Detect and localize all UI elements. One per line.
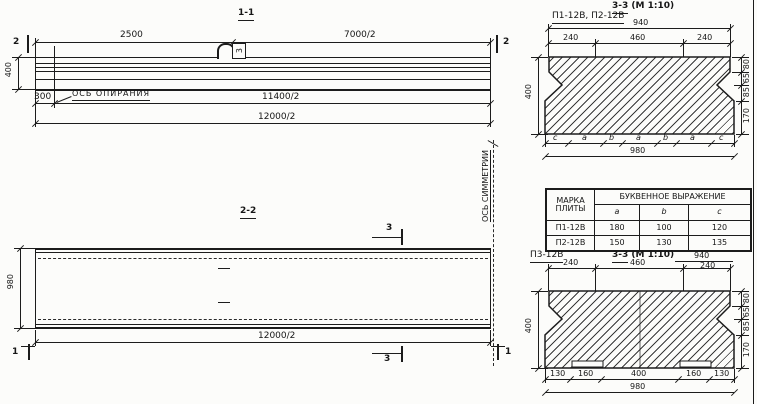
dim-extension — [35, 330, 36, 346]
dim-extension — [683, 39, 684, 57]
beam-line — [35, 79, 490, 80]
dim-label-400: 400 — [631, 370, 646, 378]
dim-line — [548, 28, 730, 29]
bottom-recess — [572, 361, 603, 367]
slab-line — [35, 324, 491, 325]
letter-dim-c: c — [719, 134, 723, 142]
slab-bottom-edge — [35, 327, 491, 329]
table-row: П2-12В 150 130 135 — [546, 236, 751, 252]
slab-right-edge — [490, 248, 491, 329]
dim-tick — [731, 153, 738, 160]
cell-a: 150 — [595, 236, 640, 252]
cut-mark-label: 1 — [12, 348, 18, 357]
dim-label-7000-2: 7000/2 — [344, 31, 376, 40]
cut-mark-label: 2 — [503, 38, 509, 47]
cut-mark-tick — [27, 35, 29, 53]
cut-mark-tick — [401, 346, 403, 362]
letter-dim-c: c — [553, 134, 557, 142]
plate-mark-label: П3-12В — [530, 251, 563, 263]
dim-line — [545, 143, 734, 144]
dim-label-130: 130 — [714, 370, 729, 378]
slab-top-edge — [35, 248, 491, 250]
dim-extension — [730, 264, 731, 291]
dim-label-65: 65 — [743, 73, 751, 83]
section-title: 3-3 (М 1:10) — [612, 2, 674, 11]
dim-extension — [14, 248, 36, 249]
dim-label-980: 980 — [630, 147, 645, 155]
dim-label-400: 400 — [5, 62, 13, 77]
dim-extension — [730, 24, 731, 57]
dim-line-vertical — [20, 248, 21, 329]
slab-left-edge — [35, 248, 36, 329]
dim-label-65: 65 — [743, 307, 751, 317]
dim-label-80: 80 — [743, 59, 751, 69]
table-col-b: b — [640, 205, 689, 221]
cut-mark-label: 3 — [386, 224, 392, 233]
dim-extension — [490, 330, 491, 346]
dim-label-12000-2: 12000/2 — [258, 332, 295, 341]
section-title: 1-1 — [238, 9, 254, 21]
slab-hidden-line — [38, 258, 488, 259]
table-header-mark: МАРКА ПЛИТЫ — [546, 189, 595, 221]
letter-dim-a: a — [690, 134, 695, 142]
dim-label-160: 160 — [686, 370, 701, 378]
beam-left-edge — [35, 38, 36, 127]
dim-extension — [14, 328, 36, 329]
cross-section-outline — [545, 291, 735, 369]
section-title-scale: (М 1:10) — [631, 1, 674, 11]
beam-line — [35, 67, 490, 68]
table-row: П1-12В 180 100 120 — [546, 221, 751, 236]
dim-line-vertical — [538, 57, 539, 135]
dim-extension — [595, 264, 596, 291]
drawing-sheet: 1-1 2500 7000/2 2 2 3 ОСЬ ОПИРАНИЯ — [0, 0, 757, 404]
letter-dim-a: a — [582, 134, 587, 142]
cut-mark-tick — [401, 229, 403, 245]
cell-mark: П2-12В — [546, 236, 595, 252]
slab-hidden-line — [38, 319, 488, 320]
dim-extension — [595, 39, 596, 57]
cut-mark-label: 1 — [505, 348, 511, 357]
loop-tag-label: 3 — [235, 48, 244, 53]
dim-line-vertical — [18, 57, 19, 90]
cell-c: 135 — [689, 236, 752, 252]
beam-top-edge — [35, 57, 490, 58]
dim-label-400: 400 — [525, 84, 533, 99]
cut-mark-line — [372, 237, 402, 238]
sheet-frame-line — [753, 0, 754, 404]
letter-dim-b: b — [609, 134, 614, 142]
cut-mark-tick — [496, 35, 498, 53]
loop-mark — [218, 302, 230, 303]
symmetry-axis-label: ОСЬ СИММЕТРИИ — [482, 150, 490, 222]
plate-marks-label: П1-12В, П2-12В — [552, 12, 624, 24]
cross-section-outline — [545, 57, 735, 135]
dim-label-12000-2: 12000/2 — [258, 113, 295, 122]
support-axis-label: ОСЬ ОПИРАНИЯ — [72, 90, 150, 101]
dim-extension — [683, 264, 684, 291]
letter-dim-b: b — [663, 134, 668, 142]
plate-parameter-table: МАРКА ПЛИТЫ БУКВЕННОЕ ВЫРАЖЕНИЕ a b c П1… — [545, 188, 752, 252]
dim-label-240: 240 — [563, 34, 578, 42]
dim-line — [548, 43, 730, 44]
leader-line — [56, 96, 71, 103]
dim-extension — [545, 369, 546, 383]
dim-label-170: 170 — [743, 342, 751, 357]
loop-tag-box: 3 — [232, 43, 246, 59]
dim-label-11400-2: 11400/2 — [262, 93, 299, 102]
dim-label-2500: 2500 — [120, 31, 143, 40]
slab-line — [35, 252, 491, 253]
dim-line — [545, 392, 734, 393]
cut-mark-line — [21, 346, 35, 347]
dim-line — [35, 123, 490, 124]
dim-extension — [734, 369, 735, 383]
dim-label-240: 240 — [700, 262, 715, 270]
dim-label-170: 170 — [743, 108, 751, 123]
dim-label-460: 460 — [630, 34, 645, 42]
cut-mark-label: 2 — [13, 38, 19, 47]
beam-right-edge — [490, 38, 491, 127]
cell-b: 130 — [640, 236, 689, 252]
cell-b: 100 — [640, 221, 689, 236]
dim-line — [35, 42, 490, 43]
loop-mark — [218, 268, 230, 269]
support-axis-line — [54, 46, 55, 108]
section-title: 2-2 — [240, 207, 256, 219]
dim-extension — [548, 24, 549, 57]
dim-label-240: 240 — [697, 34, 712, 42]
dim-line — [545, 379, 734, 380]
dim-label-980: 980 — [7, 274, 15, 289]
dim-label-130: 130 — [550, 370, 565, 378]
dim-line — [35, 342, 490, 343]
cell-c: 120 — [689, 221, 752, 236]
dim-label-940: 940 — [633, 19, 648, 27]
dim-label-460: 460 — [630, 259, 645, 267]
cell-a: 180 — [595, 221, 640, 236]
dim-line — [545, 156, 734, 157]
section-title-number: 3-3 — [612, 250, 628, 263]
dim-label-400: 400 — [525, 318, 533, 333]
dim-label-300: 300 — [34, 93, 51, 102]
dim-label-940: 940 — [694, 252, 709, 260]
dim-line-vertical — [538, 291, 539, 369]
dim-label-85: 85 — [743, 87, 751, 97]
cell-mark: П1-12В — [546, 221, 595, 236]
dim-label-240: 240 — [563, 259, 578, 267]
beam-line — [35, 63, 490, 64]
table-col-a: a — [595, 205, 640, 221]
table-header-group: БУКВЕННОЕ ВЫРАЖЕНИЕ — [595, 189, 752, 205]
cut-mark-label: 3 — [384, 355, 390, 364]
dim-label-80: 80 — [743, 293, 751, 303]
letter-dim-a: a — [636, 134, 641, 142]
beam-line — [35, 71, 490, 72]
dim-line — [35, 103, 490, 104]
table-col-c: c — [689, 205, 752, 221]
dim-label-160: 160 — [578, 370, 593, 378]
bottom-recess — [680, 361, 711, 367]
dim-label-85: 85 — [743, 321, 751, 331]
dim-extension — [548, 264, 549, 291]
symmetry-axis-line — [493, 140, 494, 366]
dim-tick — [731, 389, 738, 396]
dim-label-980: 980 — [630, 383, 645, 391]
